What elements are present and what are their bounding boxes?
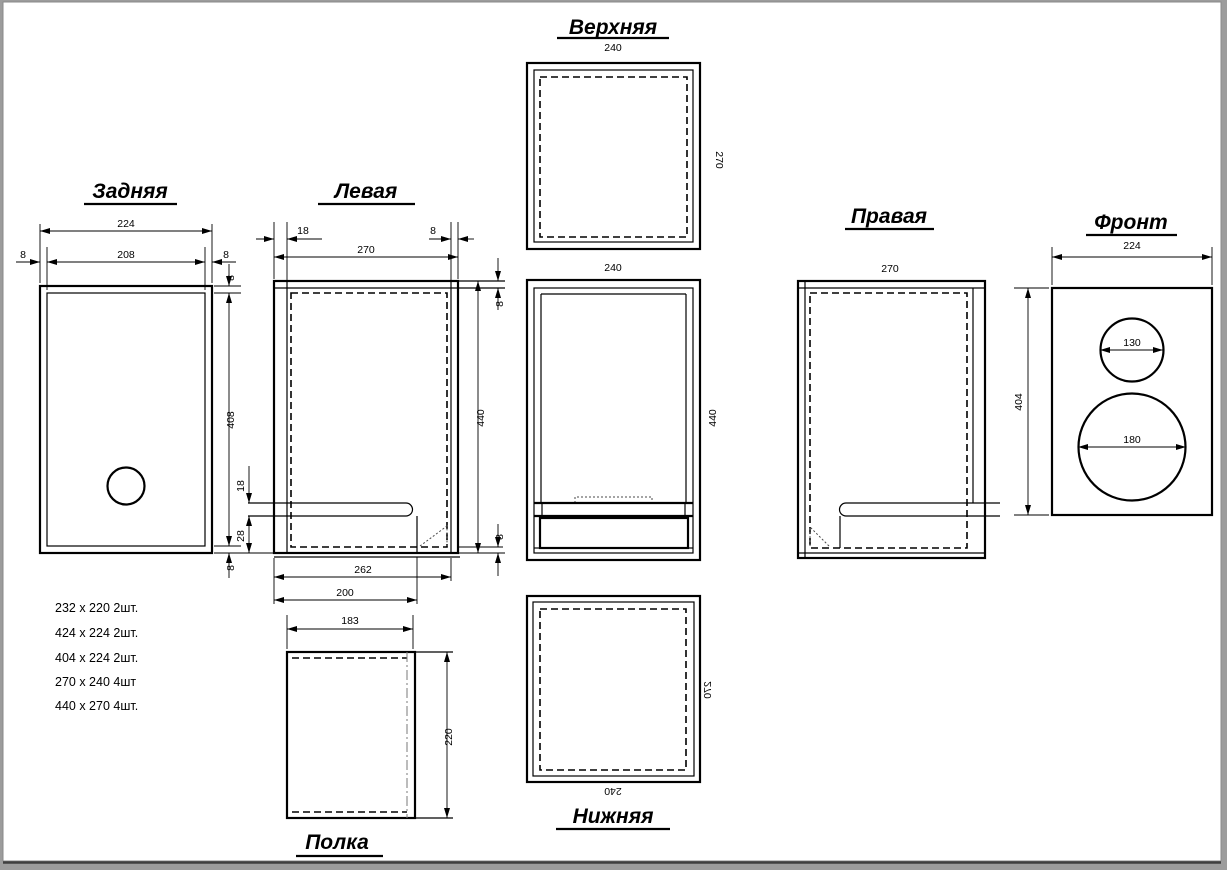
parts-row-3: 404 x 224 2шт. <box>55 651 138 665</box>
back-title: Задняя <box>92 180 168 203</box>
back-side-l-label: 8 <box>20 249 26 261</box>
cad-drawing: ЗадняяЛеваяВерхняяПраваяФронтНижняяПолка… <box>0 0 1227 870</box>
back-botthick-label: 8 <box>225 565 237 571</box>
front-w-label: 224 <box>1123 240 1141 252</box>
back-topthick-label: 8 <box>225 275 237 281</box>
parts-row-1: 232 x 220 2шт. <box>55 601 138 615</box>
left-botthick-label: 8 <box>494 534 506 540</box>
parts-row-5: 440 x 270 4шт. <box>55 699 138 713</box>
bottom-w-label: 240 <box>604 785 622 797</box>
bottom-d-label: 270 <box>702 681 714 699</box>
top-w-label: 240 <box>604 42 622 54</box>
front-h-label: 404 <box>1013 393 1025 411</box>
left-200-label: 200 <box>336 587 354 599</box>
back-inner-w-label: 208 <box>117 249 135 261</box>
assembly-w-label: 240 <box>604 262 622 274</box>
front-title: Фронт <box>1094 211 1167 234</box>
top-title: Верхняя <box>569 16 657 39</box>
woofer-label: 180 <box>1123 434 1141 446</box>
left-262-label: 262 <box>354 564 372 576</box>
drawing-paper <box>3 2 1221 861</box>
top-d-label: 270 <box>713 151 725 169</box>
parts-row-4: 270 x 240 4шт <box>55 675 136 689</box>
left-w-label: 270 <box>357 244 375 256</box>
left-h-label: 440 <box>475 409 487 427</box>
left-shelft-label: 18 <box>235 480 247 492</box>
left-topthick-label: 8 <box>494 301 506 307</box>
assembly-h-label: 440 <box>707 409 719 427</box>
right-title: Правая <box>851 205 927 228</box>
back-w-label: 224 <box>117 218 135 230</box>
shelf-w-label: 183 <box>341 615 359 627</box>
right-w-label: 270 <box>881 263 899 275</box>
left-shelfoff-label: 28 <box>235 530 247 542</box>
back-h-label: 408 <box>225 411 237 429</box>
tweeter-label: 130 <box>1123 337 1141 349</box>
bottom-title: Нижняя <box>573 805 654 828</box>
back-side-r-label: 8 <box>223 249 229 261</box>
left-18-label: 18 <box>297 225 309 237</box>
left-8-label: 8 <box>430 225 436 237</box>
shelf-title: Полка <box>305 831 369 854</box>
parts-row-2: 424 x 224 2шт. <box>55 626 138 640</box>
shelf-d-label: 220 <box>443 728 455 746</box>
left-title: Левая <box>333 180 398 203</box>
